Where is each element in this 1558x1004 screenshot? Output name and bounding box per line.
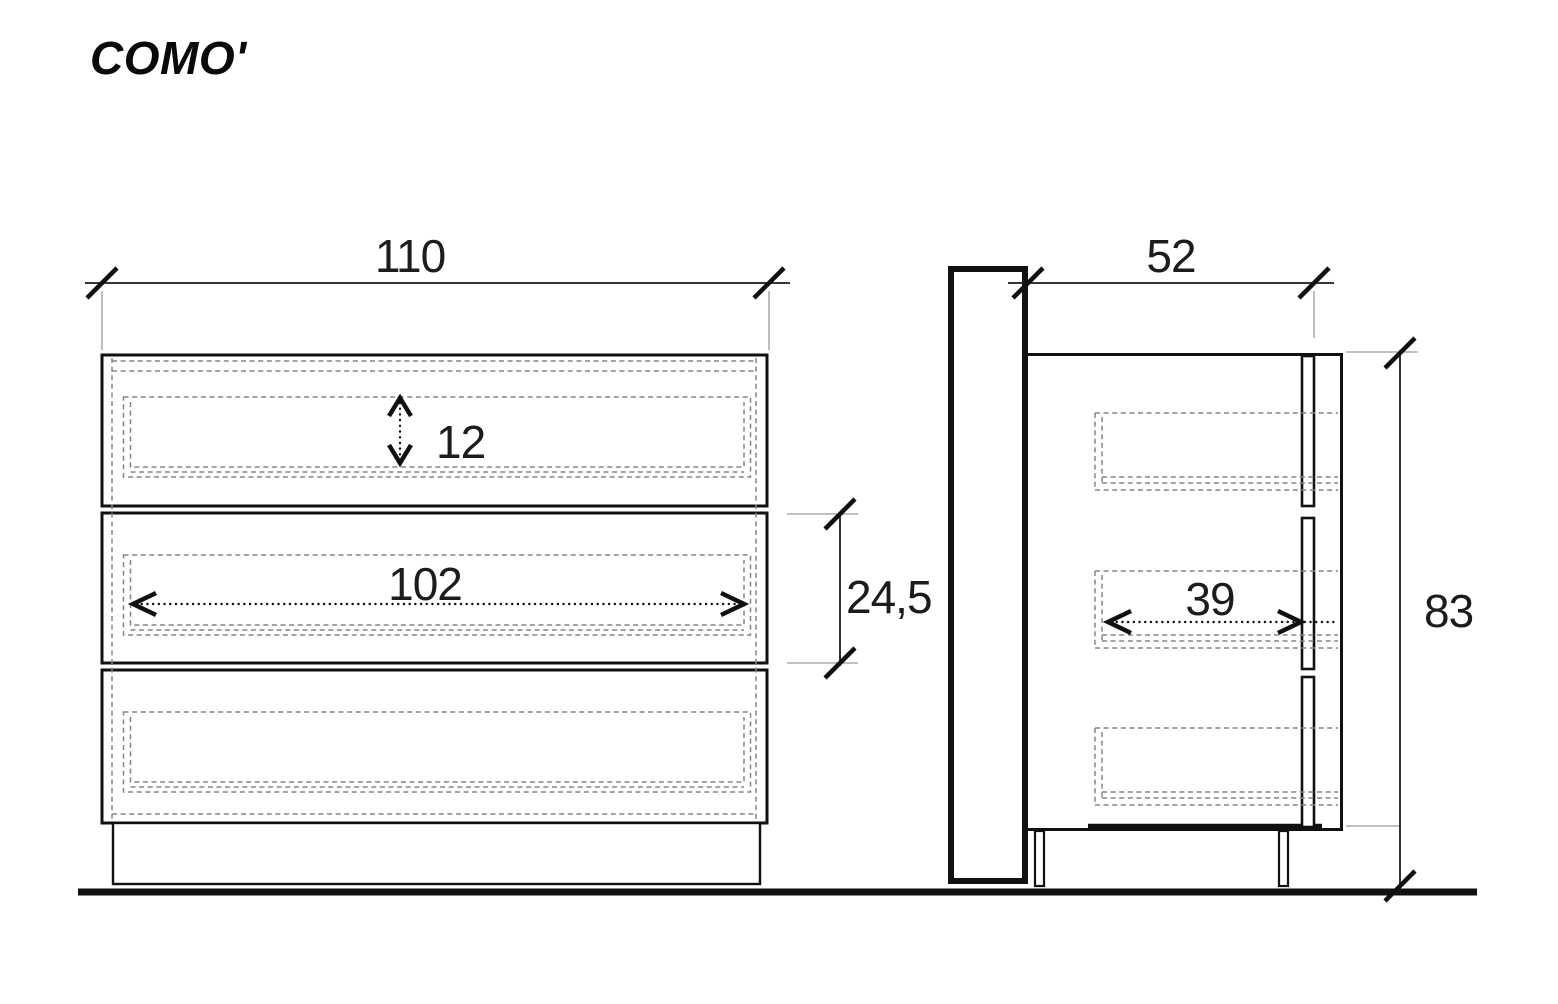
side-view xyxy=(951,269,1343,886)
front-drawer-1 xyxy=(102,355,767,506)
front-view xyxy=(102,355,767,884)
dim-drawer-front-height-value: 24,5 xyxy=(846,571,932,623)
dim-total-height-value: 83 xyxy=(1424,585,1473,637)
dim-total-width-value: 110 xyxy=(375,230,445,282)
dim-drawer-inner-depth-value: 39 xyxy=(1185,573,1234,625)
drawing-title: COMO' xyxy=(90,32,248,84)
dim-drawer-front-height: 24,5 xyxy=(787,499,932,678)
side-foot-front xyxy=(1035,831,1044,886)
como-dresser-drawing: COMO' xyxy=(0,0,1558,1004)
side-back-panel-2 xyxy=(1302,518,1314,669)
front-drawer-3 xyxy=(102,670,767,823)
dim-total-depth-value: 52 xyxy=(1146,230,1195,282)
front-plinth xyxy=(113,823,760,884)
dim-total-depth: 52 xyxy=(1008,230,1334,338)
dim-drawer-inner-height-value: 12 xyxy=(436,416,485,468)
technical-drawing-page: COMO' xyxy=(0,0,1558,1004)
side-front-panel xyxy=(951,269,1025,881)
side-foot-back xyxy=(1279,831,1288,886)
dim-drawer-inner-width-value: 102 xyxy=(388,558,462,610)
dim-total-height: 83 xyxy=(1346,338,1473,901)
dim-total-width: 110 xyxy=(85,230,790,350)
